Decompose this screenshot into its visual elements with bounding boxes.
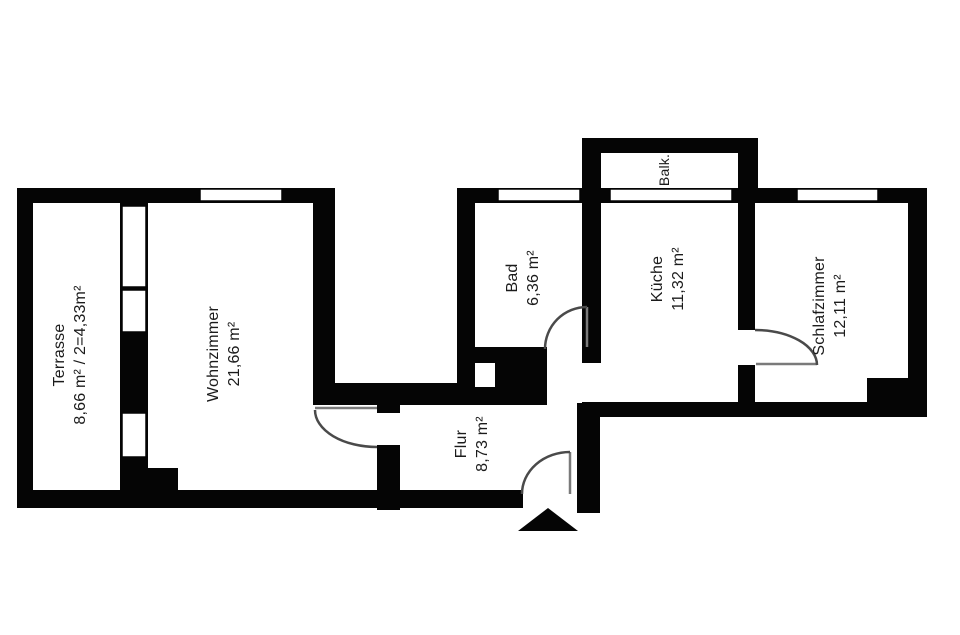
wall-bad-south — [457, 347, 547, 363]
window-wohnzimmer — [200, 189, 282, 201]
room-label-terrasse: Terrasse 8,66 m² / 2=4,33m² — [49, 285, 91, 424]
window-terrasse-1 — [122, 206, 146, 287]
room-area: 8,66 m² / 2=4,33m² — [70, 285, 91, 424]
wall-schlafzimmer-notch — [867, 378, 908, 402]
room-name: Wohnzimmer — [203, 306, 224, 402]
wall-bad-west — [457, 203, 475, 405]
wall-bottom-left-section — [17, 490, 523, 508]
room-area: 6,36 m² — [523, 250, 544, 306]
wall-top-left-section — [17, 188, 335, 203]
wall-bad-kueche — [582, 203, 601, 363]
room-name: Schlafzimmer — [809, 256, 830, 355]
wall-west-outer — [17, 203, 33, 507]
room-name: Balk. — [656, 154, 672, 186]
wall-balcony-east — [738, 138, 758, 203]
wall-step-block — [142, 468, 178, 492]
room-label-wohnzimmer: Wohnzimmer 21,66 m² — [203, 306, 245, 402]
room-area: 12,11 m² — [830, 256, 851, 355]
room-area: 8,73 m² — [472, 416, 493, 472]
wall-wohnzimmer-east — [313, 188, 335, 405]
window-schlafzimmer — [797, 189, 878, 201]
room-area: 21,66 m² — [224, 306, 245, 402]
floor-plan: Terrasse 8,66 m² / 2=4,33m² Wohnzimmer 2… — [0, 0, 960, 635]
window-terrasse-3 — [122, 413, 146, 457]
window-bad — [498, 189, 580, 201]
window-kueche-balcony — [610, 189, 732, 201]
wall-east-outer — [908, 188, 927, 417]
wall-balcony-north — [582, 138, 758, 153]
room-area: 11,32 m² — [668, 247, 689, 311]
room-label-schlafzimmer: Schlafzimmer 12,11 m² — [809, 256, 851, 355]
wall-flur-north-west — [335, 383, 460, 405]
room-label-bad: Bad 6,36 m² — [502, 250, 544, 306]
wall-flur-west — [377, 445, 400, 510]
room-label-flur: Flur 8,73 m² — [451, 416, 493, 472]
room-name: Terrasse — [49, 285, 70, 424]
room-name: Flur — [451, 416, 472, 472]
room-name: Küche — [647, 247, 668, 311]
window-terrasse-2 — [122, 290, 146, 332]
room-name: Bad — [502, 250, 523, 306]
room-label-balkon: Balk. — [656, 154, 672, 186]
room-label-kueche: Küche 11,32 m² — [647, 247, 689, 311]
wall-kueche-schlafzimmer-lower — [738, 365, 755, 402]
wall-bottom-right-section — [582, 402, 927, 417]
wall-door-stub — [377, 405, 400, 413]
wall-entrance-east — [577, 403, 600, 513]
wall-kueche-schlafzimmer-upper — [738, 203, 755, 330]
